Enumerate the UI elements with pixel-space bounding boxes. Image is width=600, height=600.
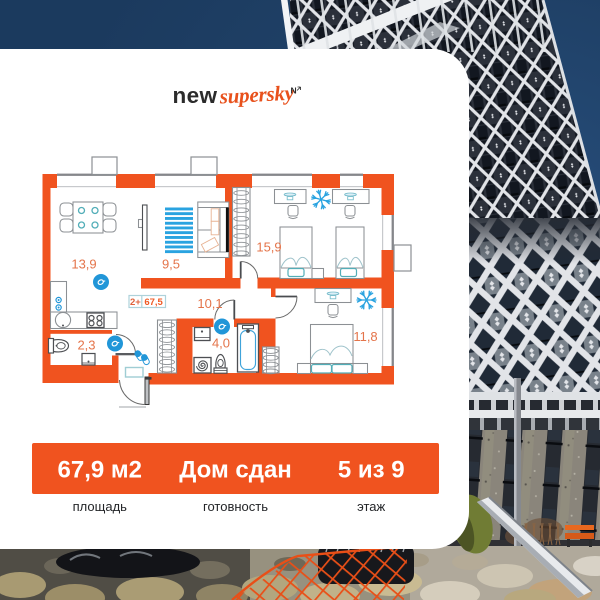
svg-text:готовность: готовность: [203, 499, 268, 514]
svg-text:supersky: supersky: [218, 81, 295, 109]
svg-text:67,5: 67,5: [144, 297, 163, 308]
svg-text:15,9: 15,9: [256, 240, 281, 255]
svg-text:9,5: 9,5: [162, 257, 180, 272]
svg-text:5 из 9: 5 из 9: [338, 457, 405, 484]
svg-text:4,0: 4,0: [212, 336, 230, 351]
svg-text:2,3: 2,3: [77, 338, 95, 353]
svg-text:Дом сдан: Дом сдан: [179, 457, 292, 484]
svg-text:11,8: 11,8: [353, 329, 377, 344]
svg-text:67,9 м2: 67,9 м2: [58, 457, 142, 484]
svg-text:площадь: площадь: [73, 499, 128, 514]
svg-text:этаж: этаж: [357, 499, 385, 514]
svg-text:13,9: 13,9: [71, 257, 96, 272]
svg-text:N: N: [291, 86, 297, 96]
svg-text:2+: 2+: [130, 297, 141, 308]
svg-text:10,1: 10,1: [197, 296, 222, 311]
svg-text:new: new: [173, 83, 218, 108]
